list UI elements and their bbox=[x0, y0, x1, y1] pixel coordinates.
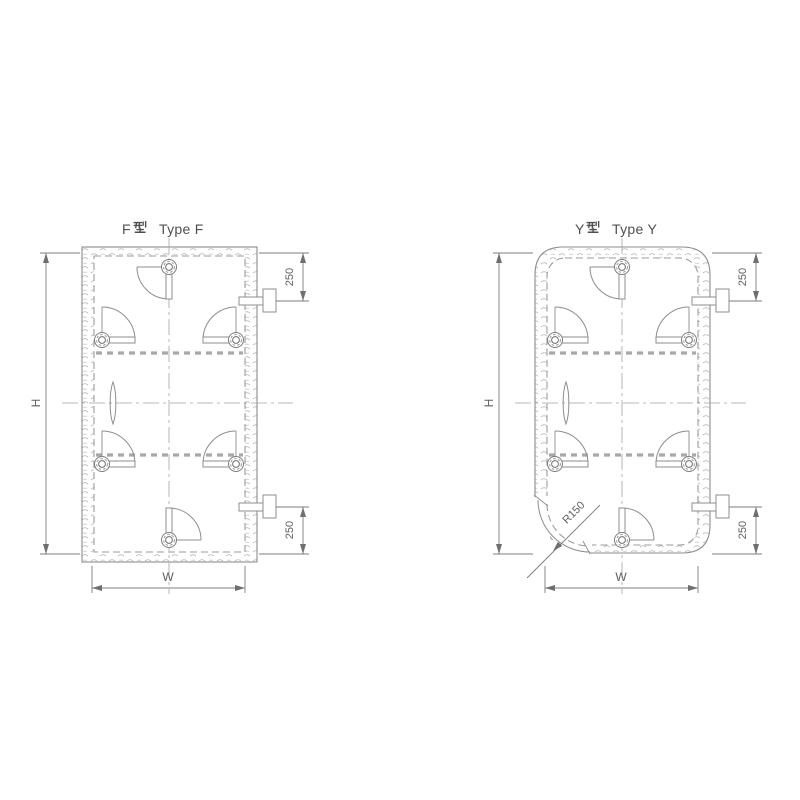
cjk-xing-glyph bbox=[587, 222, 598, 233]
y-door-gasket-outline bbox=[547, 258, 698, 545]
y-door: R150 Y Type Y H W 250 250 bbox=[482, 221, 762, 594]
y-dim-label-250-top: 250 bbox=[737, 268, 749, 286]
cjk-xing-glyph bbox=[134, 222, 145, 233]
y-title-type: Type Y bbox=[612, 221, 657, 237]
f-title-prefix: F bbox=[122, 221, 131, 237]
y-door-title: Y Type Y bbox=[575, 221, 657, 237]
f-dim-label-w: W bbox=[162, 570, 174, 584]
f-title-type: Type F bbox=[159, 221, 204, 237]
y-title-prefix: Y bbox=[575, 221, 585, 237]
y-dim-label-h: H bbox=[482, 399, 496, 408]
f-dim-label-250-top: 250 bbox=[284, 268, 296, 286]
f-door-title: F Type F bbox=[122, 221, 204, 237]
technical-drawing: F Type F H W 250 250 R150 bbox=[0, 0, 800, 800]
f-door: F Type F H W 250 250 bbox=[29, 221, 309, 594]
y-dim-label-w: W bbox=[615, 570, 627, 584]
y-dim-label-250-bottom: 250 bbox=[737, 521, 749, 539]
drawing-page: F Type F H W 250 250 R150 bbox=[0, 0, 800, 800]
height-dimension bbox=[40, 253, 80, 554]
f-dim-label-250-bottom: 250 bbox=[284, 521, 296, 539]
f-dim-label-h: H bbox=[29, 399, 43, 408]
